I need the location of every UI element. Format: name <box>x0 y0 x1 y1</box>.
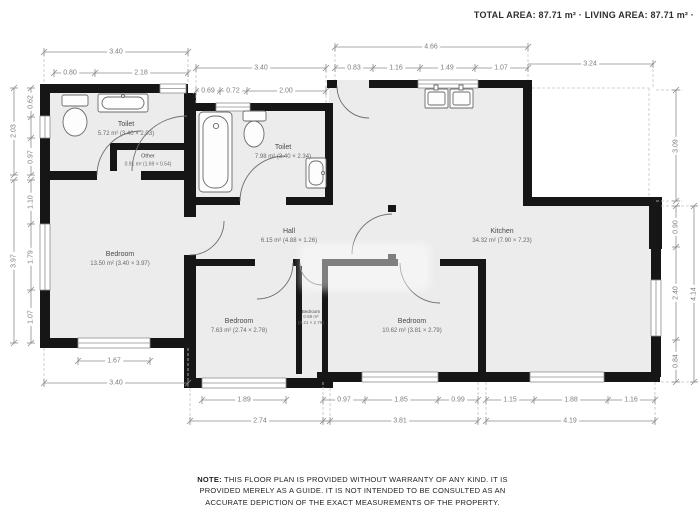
dim-label-r4: 0.84 <box>673 352 680 370</box>
note-body: THIS FLOOR PLAN IS PROVIDED WITHOUT WARR… <box>199 475 507 507</box>
dim-label-b12: 4.19 <box>561 418 579 425</box>
dim-label-b3: 1.89 <box>235 397 253 404</box>
dim-label-l7: 1.07 <box>28 308 35 326</box>
room-label-bedroom-2: Bedroom 7.63 m² (2.74 × 2.78) <box>211 317 267 335</box>
dim-label-b7: 0.99 <box>449 397 467 404</box>
room-label-bedroom-1: Bedroom 13.50 m² (3.40 × 3.97) <box>90 250 150 268</box>
bathtub-icon <box>199 112 232 192</box>
dim-label-t3: 2.18 <box>132 70 150 77</box>
dim-label-t10: 1.16 <box>387 65 405 72</box>
dim-label-l1: 2.03 <box>11 122 18 140</box>
dim-label-l3: 0.97 <box>28 148 35 166</box>
dim-label-t4: 3.40 <box>252 65 270 72</box>
dim-label-l4: 3.97 <box>11 252 18 270</box>
dim-label-r2: 0.90 <box>673 218 680 236</box>
room-label-other: Other 0.91 m² (1.69 × 0.54) <box>125 154 172 169</box>
dim-label-t9: 0.83 <box>345 65 363 72</box>
dim-label-l5: 1.10 <box>28 193 35 211</box>
watermark <box>300 243 430 291</box>
dim-label-t11: 1.49 <box>438 65 456 72</box>
floor-plan-page: TOTAL AREA: 87.71 m² · LIVING AREA: 87.7… <box>0 0 700 525</box>
dim-label-t2: 0.80 <box>61 70 79 77</box>
dim-label-r3: 2.40 <box>673 284 680 302</box>
disclaimer-note: NOTE: THIS FLOOR PLAN IS PROVIDED WITHOU… <box>180 474 525 508</box>
dim-label-l6: 1.79 <box>28 248 35 266</box>
room-label-toilet-2: Toilet 7.98 m² (3.40 × 2.34) <box>255 143 311 161</box>
dim-label-t8: 4.66 <box>422 44 440 51</box>
dim-label-r5: 4.14 <box>691 285 698 303</box>
room-label-hall: Hall 6.15 m² (4.88 × 1.26) <box>261 227 317 245</box>
dim-label-b2: 3.40 <box>107 380 125 387</box>
dim-label-t13: 3.24 <box>581 61 599 68</box>
room-label-closet: Bedroom 0.59 m² (0.21 × 2.79) <box>298 309 324 325</box>
room-label-kitchen: Kitchen 34.32 m² (7.90 × 7.23) <box>472 227 532 245</box>
dim-label-b1: 1.67 <box>105 358 123 365</box>
dim-label-b8: 3.81 <box>391 418 409 425</box>
dim-label-b11: 1.16 <box>622 397 640 404</box>
room-label-bedroom-3: Bedroom 10.62 m² (3.81 × 2.79) <box>382 317 442 335</box>
dim-label-t5: 0.69 <box>199 88 217 95</box>
toilet-icon <box>243 111 266 147</box>
dim-label-b5: 0.97 <box>335 397 353 404</box>
dim-label-t7: 2.00 <box>277 88 295 95</box>
dim-label-b6: 1.85 <box>392 397 410 404</box>
toilet-icon <box>62 95 88 136</box>
dim-label-b9: 1.15 <box>501 397 519 404</box>
note-prefix: NOTE: <box>197 475 222 484</box>
sink-icon <box>98 94 148 112</box>
dim-label-t6: 0.72 <box>224 88 242 95</box>
dim-label-t12: 1.07 <box>492 65 510 72</box>
dim-label-t1: 3.40 <box>107 49 125 56</box>
dim-label-b10: 1.88 <box>562 397 580 404</box>
dim-label-l2: 0.62 <box>28 93 35 111</box>
dim-label-r1: 3.09 <box>673 137 680 155</box>
dim-label-b4: 2.74 <box>251 418 269 425</box>
room-label-toilet-1: Toilet 5.72 m² (3.40 × 2.03) <box>98 120 154 138</box>
sink-icon <box>306 158 326 188</box>
